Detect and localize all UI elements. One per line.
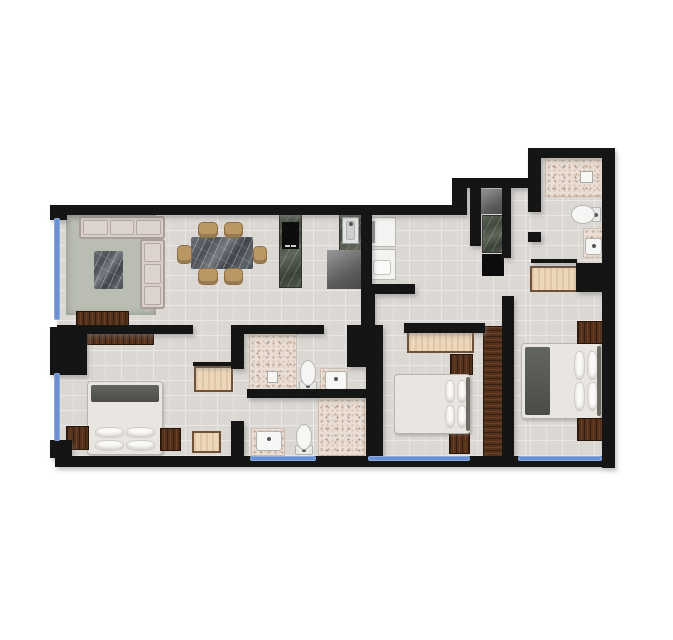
window — [54, 373, 60, 441]
window — [368, 456, 470, 461]
window — [54, 218, 60, 320]
floor-plan — [0, 0, 673, 640]
window — [518, 456, 602, 461]
window — [250, 456, 316, 461]
windows-layer — [0, 0, 673, 640]
